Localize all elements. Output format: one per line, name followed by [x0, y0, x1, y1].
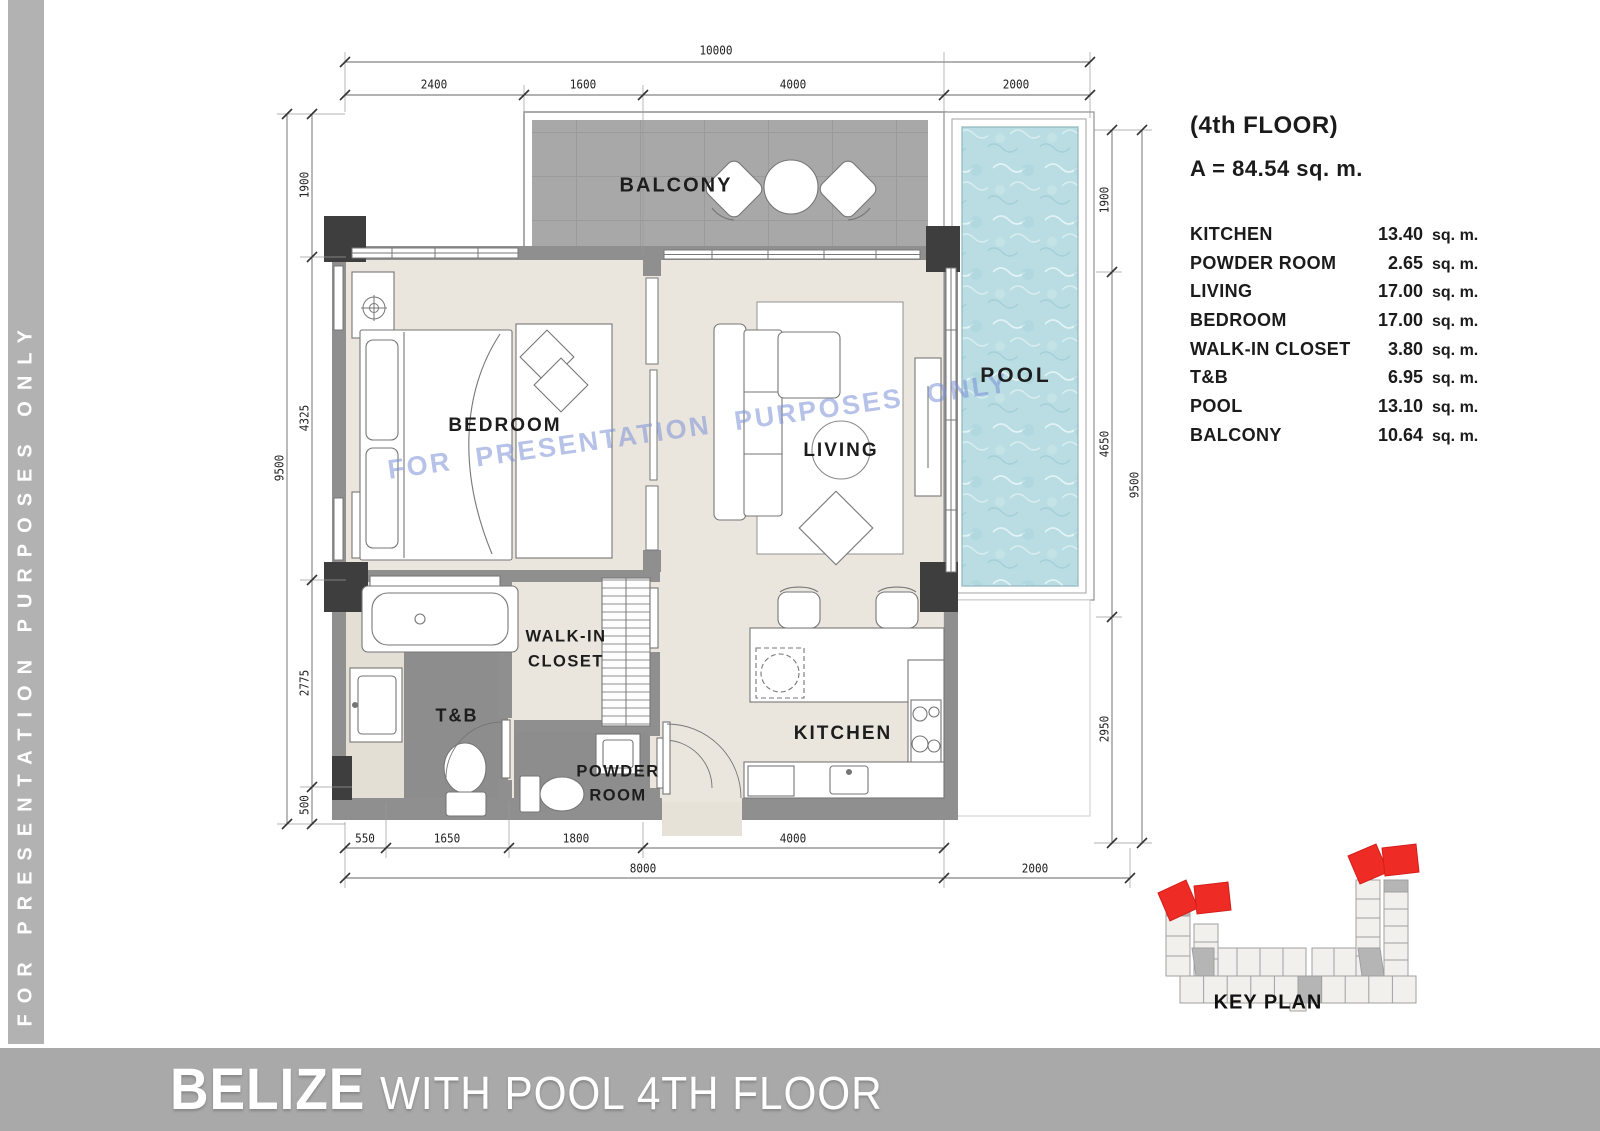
- room-area: 13.10: [1371, 396, 1423, 417]
- room-area-unit: sq. m.: [1432, 313, 1490, 331]
- dim-bottom-seg-1: 550: [355, 831, 375, 846]
- room-area: 10.64: [1371, 425, 1423, 446]
- room-name: LIVING: [1190, 281, 1371, 302]
- room-label-tb: T&B: [436, 706, 479, 727]
- room-area: 13.40: [1371, 224, 1423, 245]
- room-area-unit: sq. m.: [1432, 428, 1490, 446]
- room-name: KITCHEN: [1190, 224, 1371, 245]
- room-label-walkin-2: CLOSET: [528, 653, 604, 672]
- dim-bottom-seg-2: 1650: [434, 831, 460, 846]
- info-panel: (4th FLOOR) A = 84.54 sq. m.: [1190, 112, 1500, 182]
- dim-right-seg-2: 4650: [1097, 431, 1112, 457]
- title-name: BELIZE: [170, 1056, 365, 1123]
- wardrobe: [602, 578, 650, 726]
- dim-right-seg-1: 1900: [1097, 187, 1112, 213]
- room-name: BALCONY: [1190, 425, 1371, 446]
- title-bar: BELIZE WITH POOL 4TH FLOOR: [0, 1048, 1600, 1131]
- room-name: WALK-IN CLOSET: [1190, 339, 1371, 360]
- room-label-bedroom: BEDROOM: [448, 415, 561, 437]
- room-label-pool: POOL: [980, 364, 1052, 388]
- room-area-row: POOL 13.10 sq. m.: [1190, 396, 1490, 425]
- room-area: 17.00: [1371, 310, 1423, 331]
- room-area-row: BEDROOM 17.00 sq. m.: [1190, 310, 1490, 339]
- total-area-label: A = 84.54 sq. m.: [1190, 156, 1500, 182]
- room-area-row: KITCHEN 13.40 sq. m.: [1190, 224, 1490, 253]
- floor-label: (4th FLOOR): [1190, 112, 1500, 140]
- dim-left-seg-3: 2775: [297, 670, 312, 696]
- room-label-living: LIVING: [803, 440, 878, 462]
- pool-area: [944, 112, 1094, 816]
- title-subtitle: WITH POOL 4TH FLOOR: [380, 1066, 883, 1120]
- page: FOR PRESENTATION PURPOSES ONLY: [0, 0, 1600, 1131]
- dim-top-seg-4: 2000: [1003, 77, 1029, 92]
- dim-top-total: 10000: [699, 43, 732, 58]
- dim-bottom-seg-4: 4000: [780, 831, 806, 846]
- dim-right-seg-3: 2950: [1097, 716, 1112, 742]
- room-label-walkin-1: WALK-IN: [525, 628, 606, 647]
- room-name: POWDER ROOM: [1190, 253, 1371, 274]
- room-area-list: KITCHEN 13.40 sq. m. POWDER ROOM 2.65 sq…: [1190, 224, 1490, 454]
- dim-left-seg-4: 500: [297, 795, 312, 815]
- dim-top-seg-2: 1600: [570, 77, 596, 92]
- room-area-row: T&B 6.95 sq. m.: [1190, 367, 1490, 396]
- dim-bottom-total-2: 2000: [1022, 861, 1048, 876]
- room-area-unit: sq. m.: [1432, 227, 1490, 245]
- room-area: 17.00: [1371, 281, 1423, 302]
- dim-top-seg-1: 2400: [421, 77, 447, 92]
- dim-top-seg-3: 4000: [780, 77, 806, 92]
- room-label-powder-1: POWDER: [576, 763, 659, 782]
- room-name: BEDROOM: [1190, 310, 1371, 331]
- room-name: POOL: [1190, 396, 1371, 417]
- room-area-unit: sq. m.: [1432, 284, 1490, 302]
- room-area-row: BALCONY 10.64 sq. m.: [1190, 425, 1490, 454]
- room-name: T&B: [1190, 367, 1371, 388]
- room-label-balcony: BALCONY: [620, 175, 733, 198]
- room-label-kitchen: KITCHEN: [794, 723, 892, 745]
- room-area: 3.80: [1371, 339, 1423, 360]
- dim-bottom-total-1: 8000: [630, 861, 656, 876]
- dim-left-seg-1: 1900: [297, 172, 312, 198]
- room-area-unit: sq. m.: [1432, 342, 1490, 360]
- room-area-row: LIVING 17.00 sq. m.: [1190, 281, 1490, 310]
- room-area-unit: sq. m.: [1432, 399, 1490, 417]
- key-plan-label: KEY PLAN: [1214, 992, 1323, 1015]
- room-area: 6.95: [1371, 367, 1423, 388]
- room-area-row: POWDER ROOM 2.65 sq. m.: [1190, 253, 1490, 282]
- room-label-powder-2: ROOM: [589, 787, 646, 806]
- dim-left-seg-2: 4325: [297, 405, 312, 431]
- room-area-unit: sq. m.: [1432, 370, 1490, 388]
- title-text: BELIZE WITH POOL 4TH FLOOR: [170, 1056, 883, 1123]
- room-area-row: WALK-IN CLOSET 3.80 sq. m.: [1190, 339, 1490, 368]
- room-area: 2.65: [1371, 253, 1423, 274]
- key-plan: [1158, 844, 1419, 1011]
- dim-bottom-seg-3: 1800: [563, 831, 589, 846]
- room-area-unit: sq. m.: [1432, 256, 1490, 274]
- dim-left-total: 9500: [272, 455, 287, 481]
- dim-right-total: 9500: [1127, 472, 1142, 498]
